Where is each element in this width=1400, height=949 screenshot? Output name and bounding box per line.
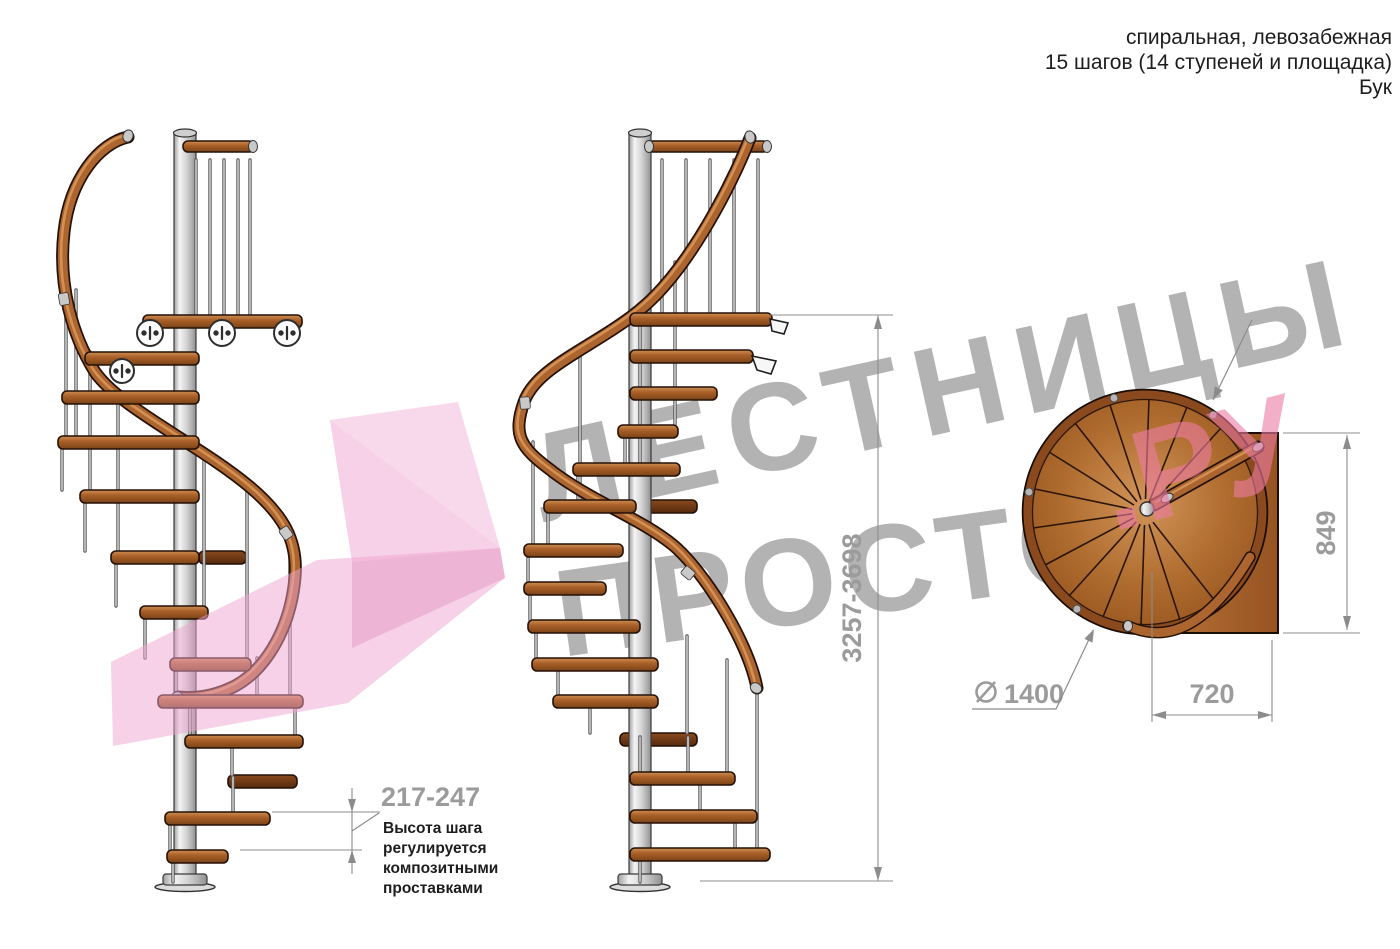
total-height-value: 3257-3698 — [837, 533, 867, 662]
note-line1: Высота шага — [383, 820, 483, 837]
arrow-down — [874, 867, 882, 881]
header-description: спиральная, левозабежная 15 шагов (14 ст… — [1045, 26, 1393, 99]
landing-platform — [630, 313, 772, 326]
step-back — [228, 775, 297, 788]
arrow-right — [1258, 711, 1272, 719]
arrow-up — [348, 850, 356, 863]
rail-end-cap — [249, 141, 258, 153]
logo-pink-arrow — [111, 402, 505, 746]
pole-base-collar — [163, 874, 207, 885]
arrow-up — [1343, 435, 1351, 449]
drawing-canvas: ЛЕСТНИЦЫ ПРОСТО — [0, 0, 1400, 949]
plan-arc-cap — [1124, 621, 1133, 632]
dimension-diameter: 1400 — [972, 629, 1094, 709]
note-line4: проставками — [383, 880, 483, 897]
handrail-sleeve — [519, 397, 530, 410]
diameter-value: 1400 — [1004, 679, 1064, 709]
handrail-sleeve — [58, 292, 70, 306]
landing-depth-value: 849 — [1311, 510, 1341, 555]
rail-end-cap — [763, 141, 772, 153]
top-guard-rail — [183, 141, 254, 152]
arrow-left — [1152, 711, 1166, 719]
arrow-up — [874, 315, 882, 329]
arrow-down — [1343, 616, 1351, 630]
staircase-side-view-center — [517, 129, 788, 892]
note-line3: композитными — [383, 860, 498, 877]
center-pole — [174, 132, 196, 880]
step-height-value: 217-247 — [381, 782, 480, 812]
step-back — [199, 551, 246, 564]
header-line2: 15 шагов (14 ступеней и площадка) — [1045, 51, 1392, 74]
header-line1: спиральная, левозабежная — [1126, 26, 1392, 49]
arrow-down — [348, 799, 356, 812]
note-line2: регулируется — [383, 840, 486, 857]
landing-width-value: 720 — [1189, 679, 1234, 709]
pole-cap — [629, 129, 652, 137]
arrow — [1084, 629, 1094, 643]
staircase-side-view-left — [58, 129, 303, 892]
header-line3: Бук — [1359, 76, 1393, 99]
rail-end-cap — [645, 141, 654, 153]
step-height-note: Высота шага регулируется композитными пр… — [383, 820, 498, 897]
dimension-step-height: 217-247 Высота шага регулируется компози… — [240, 782, 498, 897]
pole-cap — [174, 129, 197, 137]
staircase-drawing-page: ЛЕСТНИЦЫ ПРОСТО — [0, 0, 1400, 949]
